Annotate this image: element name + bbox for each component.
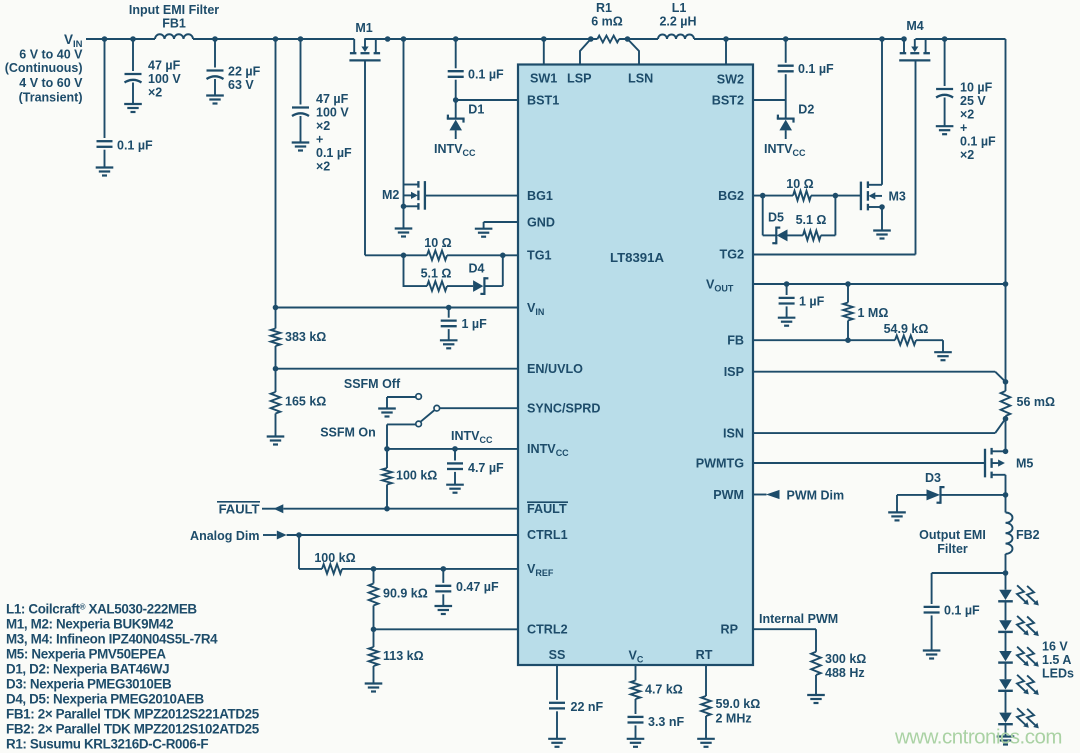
svg-text:4.7 µF: 4.7 µF bbox=[468, 461, 504, 475]
svg-text:FB2: FB2 bbox=[1016, 528, 1040, 542]
svg-text:300 kΩ: 300 kΩ bbox=[825, 652, 866, 666]
svg-text:Filter: Filter bbox=[937, 542, 968, 556]
svg-text:PWM: PWM bbox=[713, 488, 744, 502]
svg-text:22 nF: 22 nF bbox=[571, 700, 604, 714]
svg-text:SSFM Off: SSFM Off bbox=[344, 377, 401, 391]
svg-text:L1: L1 bbox=[672, 1, 687, 15]
svg-text:1 µF: 1 µF bbox=[462, 317, 488, 331]
svg-text:D3: Nexperia PMEG3010EB: D3: Nexperia PMEG3010EB bbox=[6, 677, 172, 692]
svg-text:EN/UVLO: EN/UVLO bbox=[527, 362, 583, 376]
svg-text:SW1: SW1 bbox=[530, 72, 557, 86]
svg-text:0.1 µF: 0.1 µF bbox=[798, 62, 834, 76]
svg-text:Analog Dim: Analog Dim bbox=[190, 529, 259, 543]
svg-text:ISP: ISP bbox=[724, 365, 744, 379]
svg-text:D3: D3 bbox=[925, 471, 941, 485]
svg-text:100 kΩ: 100 kΩ bbox=[396, 469, 437, 483]
svg-text:47 µF: 47 µF bbox=[148, 59, 181, 73]
svg-text:16 V: 16 V bbox=[1042, 640, 1068, 654]
svg-text:×2: ×2 bbox=[960, 148, 974, 162]
svg-text:0.1 µF: 0.1 µF bbox=[117, 139, 153, 153]
svg-text:0.1 µF: 0.1 µF bbox=[944, 604, 980, 618]
svg-text:SSFM On: SSFM On bbox=[320, 426, 376, 440]
svg-text:488 Hz: 488 Hz bbox=[825, 666, 865, 680]
svg-text:10 Ω: 10 Ω bbox=[786, 177, 813, 191]
svg-text:D1, D2: Nexperia BAT46WJ: D1, D2: Nexperia BAT46WJ bbox=[6, 662, 169, 677]
svg-text:1 MΩ: 1 MΩ bbox=[858, 306, 889, 320]
svg-text:0.1 µF: 0.1 µF bbox=[316, 146, 352, 160]
svg-text:FB1: 2× Parallel TDK MPZ2012S2: FB1: 2× Parallel TDK MPZ2012S221ATD25 bbox=[6, 707, 260, 722]
svg-text:Internal PWM: Internal PWM bbox=[759, 612, 838, 626]
svg-text:25 V: 25 V bbox=[960, 94, 986, 108]
svg-text:100 V: 100 V bbox=[148, 72, 181, 86]
svg-text:BST2: BST2 bbox=[712, 93, 744, 107]
svg-text:4 V to 60 V: 4 V to 60 V bbox=[19, 76, 83, 90]
svg-text:CTRL2: CTRL2 bbox=[527, 623, 568, 637]
svg-text:D1: D1 bbox=[468, 102, 484, 116]
svg-text:0.1 µF: 0.1 µF bbox=[960, 135, 996, 149]
svg-text:54.9 kΩ: 54.9 kΩ bbox=[884, 322, 929, 336]
svg-text:PWMTG: PWMTG bbox=[696, 456, 744, 470]
svg-text:100 V: 100 V bbox=[316, 106, 349, 120]
svg-text:90.9 kΩ: 90.9 kΩ bbox=[383, 587, 428, 601]
svg-text:M1, M2: Nexperia BUK9M42: M1, M2: Nexperia BUK9M42 bbox=[6, 617, 173, 632]
svg-text:M4: M4 bbox=[906, 19, 923, 33]
svg-text:FB2: 2× Parallel TDK MPZ2012S1: FB2: 2× Parallel TDK MPZ2012S102ATD25 bbox=[6, 722, 260, 737]
svg-text:0.47 µF: 0.47 µF bbox=[456, 580, 499, 594]
svg-text:BG1: BG1 bbox=[527, 189, 553, 203]
svg-text:6 mΩ: 6 mΩ bbox=[591, 15, 623, 29]
svg-text:6 V to 40 V: 6 V to 40 V bbox=[19, 48, 83, 62]
svg-text:BG2: BG2 bbox=[718, 189, 744, 203]
svg-text:GND: GND bbox=[527, 215, 555, 229]
svg-text:FAULT: FAULT bbox=[527, 502, 567, 516]
svg-text:D5: D5 bbox=[768, 211, 784, 225]
svg-text:RP: RP bbox=[721, 623, 739, 637]
svg-text:FAULT: FAULT bbox=[219, 502, 260, 517]
svg-text:ISN: ISN bbox=[723, 426, 744, 440]
svg-text:M2: M2 bbox=[382, 188, 399, 202]
svg-text:D4, D5: Nexperia PMEG2010AEB: D4, D5: Nexperia PMEG2010AEB bbox=[6, 692, 205, 707]
svg-text:383 kΩ: 383 kΩ bbox=[285, 330, 326, 344]
svg-text:2 MHz: 2 MHz bbox=[716, 712, 752, 726]
svg-text:M3: M3 bbox=[889, 190, 906, 204]
svg-text:D2: D2 bbox=[798, 102, 814, 116]
svg-text:www.cntronics.com: www.cntronics.com bbox=[894, 726, 1062, 749]
svg-text:TG1: TG1 bbox=[527, 249, 552, 263]
svg-text:(Continuous): (Continuous) bbox=[5, 61, 83, 75]
svg-text:113 kΩ: 113 kΩ bbox=[383, 649, 424, 663]
svg-text:22 µF: 22 µF bbox=[228, 65, 261, 79]
svg-text:59.0 kΩ: 59.0 kΩ bbox=[716, 697, 761, 711]
svg-text:Input EMI Filter: Input EMI Filter bbox=[129, 3, 219, 17]
svg-text:2.2 µH: 2.2 µH bbox=[659, 15, 696, 29]
svg-text:0.1 µF: 0.1 µF bbox=[468, 68, 504, 82]
svg-text:M1: M1 bbox=[355, 21, 372, 35]
svg-text:165 kΩ: 165 kΩ bbox=[285, 395, 326, 409]
svg-text:63 V: 63 V bbox=[228, 78, 254, 92]
svg-text:BST1: BST1 bbox=[527, 93, 559, 107]
svg-text:5.1 Ω: 5.1 Ω bbox=[421, 267, 452, 281]
svg-text:(Transient): (Transient) bbox=[19, 91, 83, 105]
svg-text:M5: M5 bbox=[1016, 457, 1033, 471]
svg-text:FB1: FB1 bbox=[162, 17, 186, 31]
svg-text:1 µF: 1 µF bbox=[799, 295, 825, 309]
svg-text:10 µF: 10 µF bbox=[960, 81, 993, 95]
svg-text:×2: ×2 bbox=[316, 160, 330, 174]
svg-text:56 mΩ: 56 mΩ bbox=[1017, 395, 1056, 409]
svg-text:TG2: TG2 bbox=[720, 248, 745, 262]
svg-text:LSP: LSP bbox=[567, 72, 592, 86]
svg-text:5.1 Ω: 5.1 Ω bbox=[796, 213, 827, 227]
svg-text:R1: Susumu KRL3216D-C-R006-F: R1: Susumu KRL3216D-C-R006-F bbox=[6, 737, 208, 752]
svg-text:L1: Coilcraft® XAL5030-222MEB: L1: Coilcraft® XAL5030-222MEB bbox=[6, 602, 197, 617]
svg-text:M5: Nexperia PMV50EPEA: M5: Nexperia PMV50EPEA bbox=[6, 647, 166, 662]
svg-text:1.5 A: 1.5 A bbox=[1042, 653, 1071, 667]
svg-text:47 µF: 47 µF bbox=[316, 92, 349, 106]
svg-text:CTRL1: CTRL1 bbox=[527, 528, 568, 542]
svg-text:RT: RT bbox=[696, 648, 713, 662]
svg-text:LT8391A: LT8391A bbox=[610, 250, 664, 265]
svg-text:+: + bbox=[960, 121, 967, 135]
svg-text:R1: R1 bbox=[596, 1, 612, 15]
svg-text:×2: ×2 bbox=[316, 119, 330, 133]
svg-text:100 kΩ: 100 kΩ bbox=[314, 551, 355, 565]
svg-text:10 Ω: 10 Ω bbox=[424, 236, 451, 250]
svg-text:3.3 nF: 3.3 nF bbox=[648, 715, 684, 729]
svg-text:LSN: LSN bbox=[628, 72, 653, 86]
svg-text:×2: ×2 bbox=[960, 108, 974, 122]
svg-text:4.7 kΩ: 4.7 kΩ bbox=[645, 683, 683, 697]
svg-text:SS: SS bbox=[549, 648, 566, 662]
svg-text:D4: D4 bbox=[469, 262, 485, 276]
svg-text:Output EMI: Output EMI bbox=[919, 528, 986, 542]
svg-text:SW2: SW2 bbox=[717, 73, 744, 87]
svg-text:LEDs: LEDs bbox=[1042, 667, 1074, 681]
svg-text:FB: FB bbox=[727, 334, 744, 348]
svg-text:+: + bbox=[316, 133, 323, 147]
svg-text:×2: ×2 bbox=[148, 86, 162, 100]
svg-text:PWM Dim: PWM Dim bbox=[787, 489, 845, 503]
svg-text:M3, M4: Infineon IPZ40N04S5L-7: M3, M4: Infineon IPZ40N04S5L-7R4 bbox=[6, 632, 218, 647]
svg-text:SYNC/SPRD: SYNC/SPRD bbox=[527, 402, 600, 416]
